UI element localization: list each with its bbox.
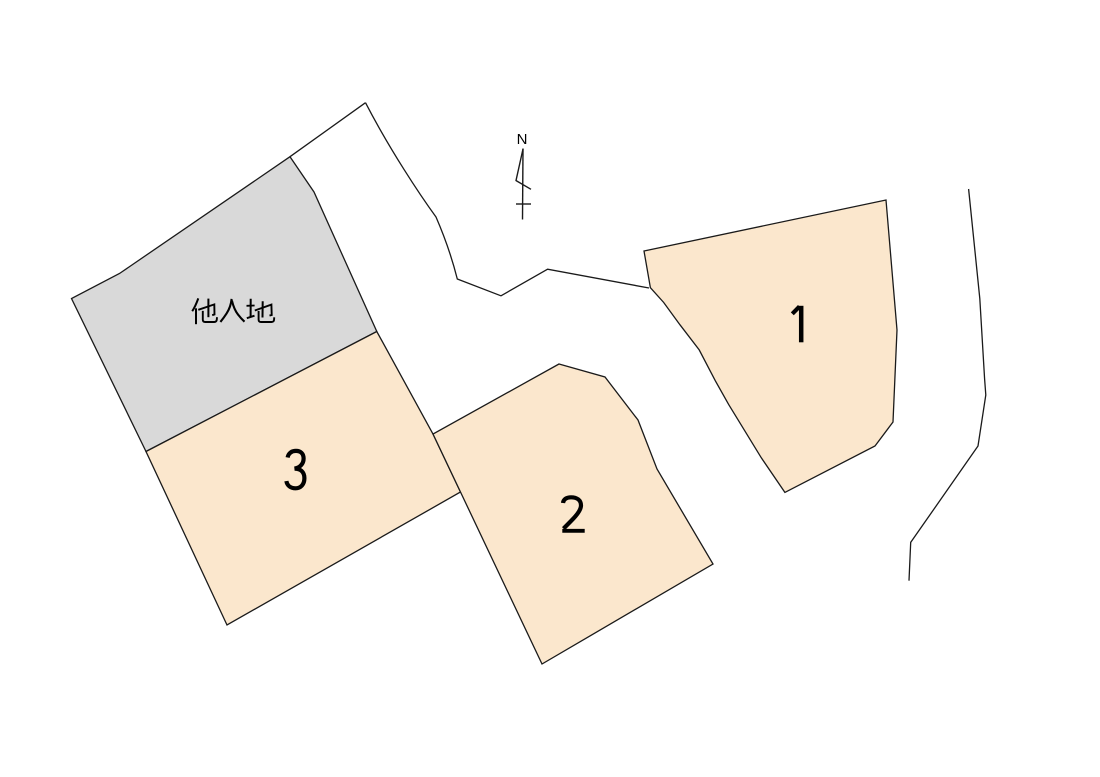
svg-text:N: N	[517, 131, 528, 148]
